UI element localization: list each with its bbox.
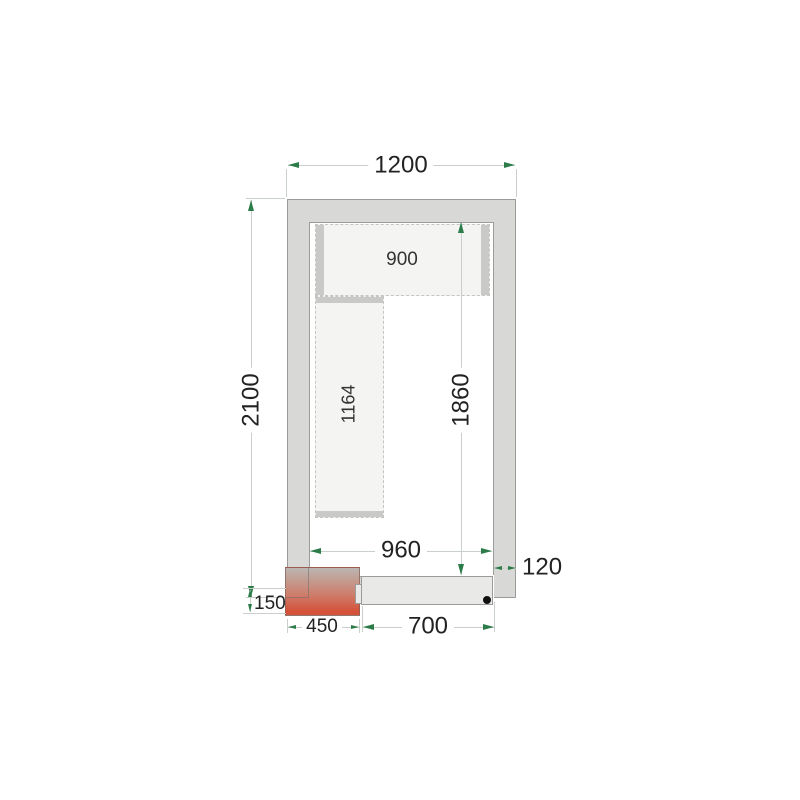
door-panel [361,576,493,605]
dim-2100-label: 2100 [238,367,263,432]
shelf-left-top-cap [316,297,383,303]
shelf-top-left-cap [316,225,324,295]
shelf-top-length-label: 900 [386,249,418,271]
dim-1860-arrow-down [458,564,464,575]
dim-700-arrow-left [363,624,374,630]
shelf-top-right-cap [481,225,489,295]
dim-1200-arrow-left [288,162,299,168]
floor-plan-canvas: 900 1164 1200 2100 1860 960 120 150 450 [0,0,800,800]
dim-1200-arrow-right [504,162,515,168]
dim-2100-arrow-up [248,200,254,211]
dim-960-label: 960 [375,537,427,562]
wall-edge-line-vertical [308,567,309,598]
dim-960-arrow-left [310,548,321,554]
dim-960-arrow-right [481,548,492,554]
dim-700-label: 700 [402,613,454,638]
dim-450-arrow-right [351,625,359,629]
dim-120-label: 120 [522,554,562,579]
dim-1860-label: 1860 [448,367,473,432]
dim-700-arrow-right [483,624,494,630]
dim-2100-ext-top [246,198,285,199]
dim-450-label: 450 [302,617,342,637]
dim-1200-ext-right [516,169,517,197]
dim-120-arrow-right [508,566,516,570]
shelf-left-length-label: 1164 [339,385,360,424]
door-handle-dot [483,596,491,604]
wall-edge-line-horizontal [286,597,309,598]
dim-120-arrow-left [494,566,502,570]
dim-450-arrow-left [288,625,296,629]
dim-150-label: 150 [254,594,286,614]
dim-700-ext-right [494,602,495,632]
dim-1200-label: 1200 [368,152,433,177]
dim-150-arrow-up [248,589,252,597]
dim-1860-arrow-up [458,222,464,233]
dim-1200-ext-left [286,169,287,197]
dim-450-ext-right [359,619,360,633]
cooling-unit [285,567,360,616]
dim-150-arrow-down [248,604,252,612]
shelf-left-bottom-cap [316,511,383,517]
